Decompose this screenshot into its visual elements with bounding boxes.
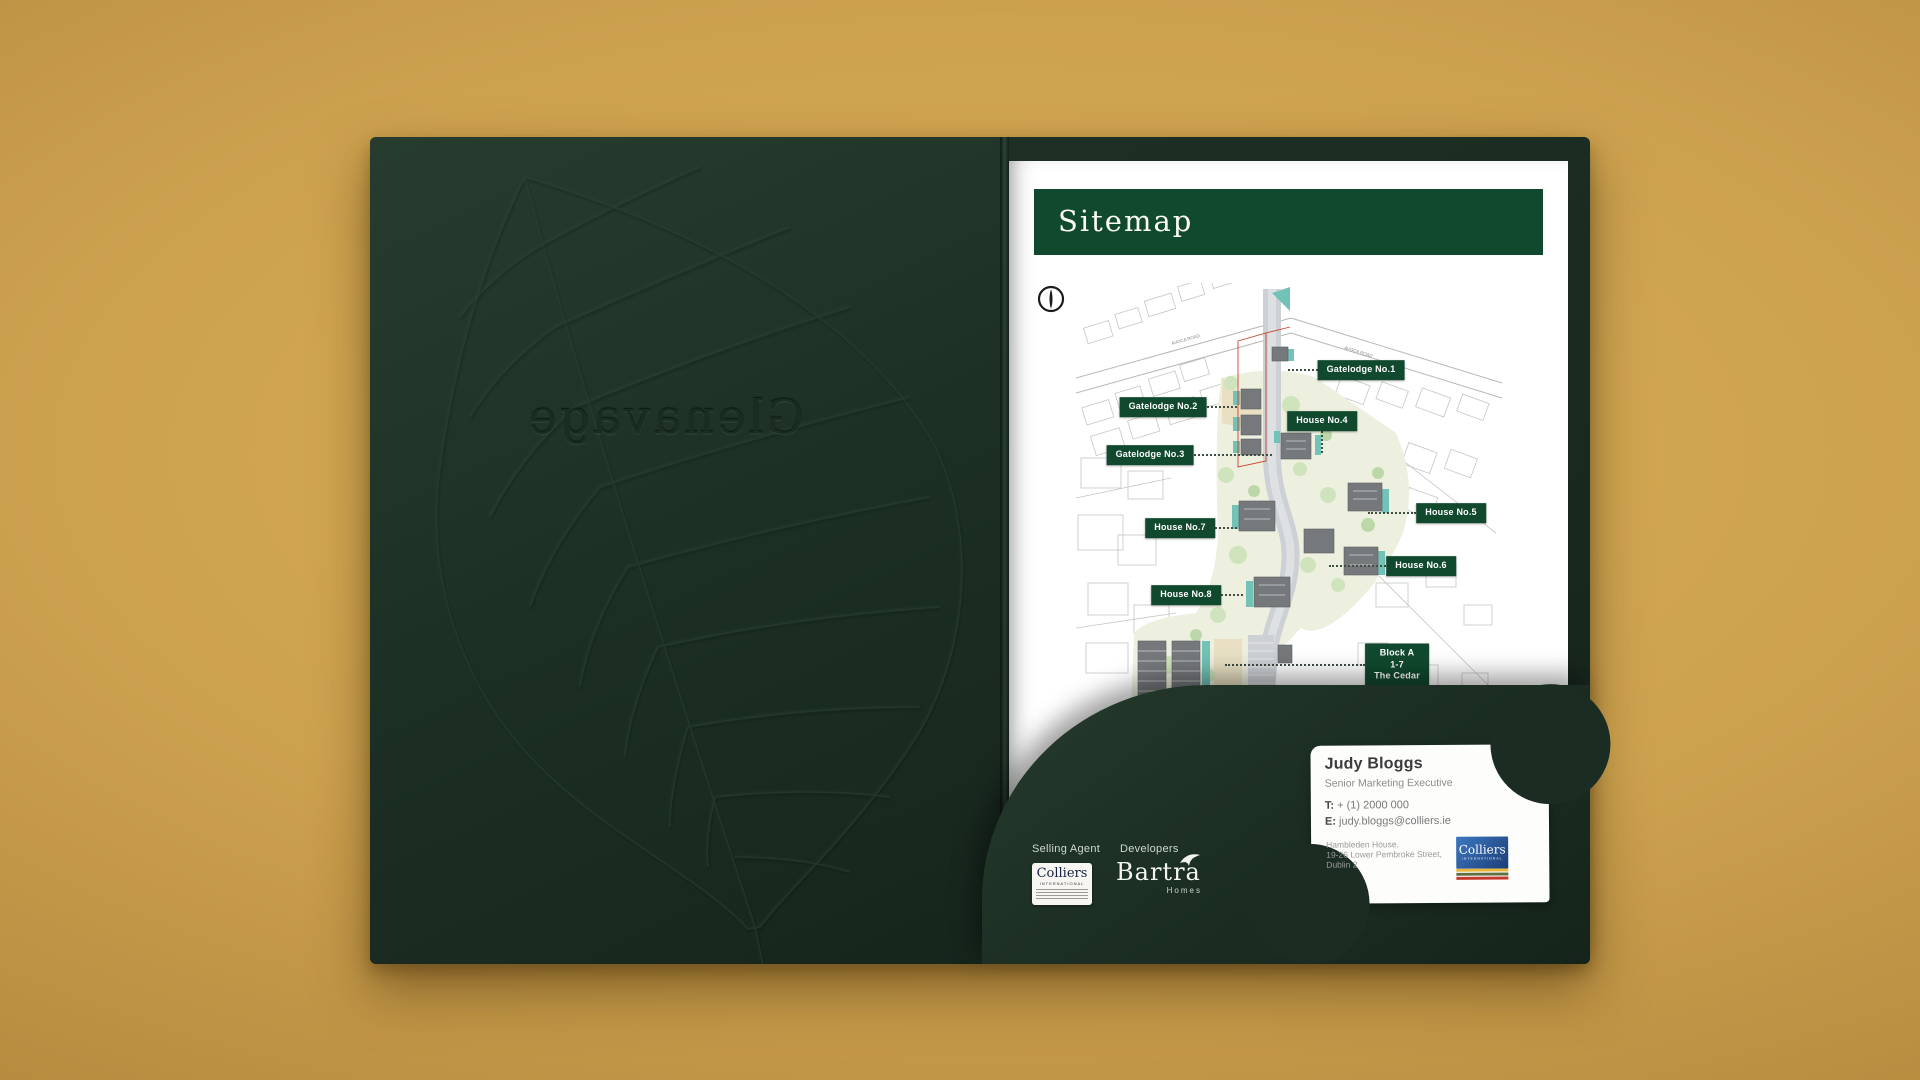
bartra-logo-subtitle: Homes: [1116, 886, 1202, 895]
card-address-line: Dublin 2: [1326, 859, 1442, 870]
page-title-banner: Sitemap: [1034, 189, 1543, 255]
leader-line: [1225, 664, 1365, 666]
map-label-badge: Gatelodge No.1: [1318, 360, 1405, 380]
colliers-logo-stripes: [1456, 868, 1508, 879]
colliers-international-logo: Colliers INTERNATIONAL: [1032, 863, 1092, 905]
colliers-logo-subtitle: INTERNATIONAL: [1032, 881, 1092, 886]
colliers-international-logo: Colliers INTERNATIONAL: [1456, 836, 1508, 879]
card-phone-label: T:: [1325, 800, 1334, 812]
colliers-logo-wordmark: Colliers: [1456, 836, 1508, 856]
business-card: Judy Bloggs Senior Marketing Executive T…: [1310, 744, 1549, 904]
pocket-diecut-notch: [1490, 684, 1611, 805]
bird-icon: [1178, 850, 1204, 868]
site-map: AVOCA ROAD AVOCA ROAD: [1076, 283, 1502, 708]
leader-line: [1288, 369, 1318, 371]
leader-line: [1194, 454, 1272, 456]
card-address: Hambleden House, 19-26 Lower Pembroke St…: [1326, 839, 1442, 870]
colliers-logo-stripes: [1036, 889, 1088, 899]
presentation-folder: Glenavage Sitemap: [370, 137, 1590, 964]
map-label-badge: Gatelodge No.3: [1107, 445, 1194, 465]
card-phone: T: + (1) 2000 000: [1325, 799, 1409, 812]
card-phone-number: + (1) 2000 000: [1334, 799, 1409, 812]
embossed-leaf-illustration: [370, 137, 1005, 964]
map-label-badge: Block A1-7The Cedar: [1365, 643, 1429, 686]
map-label-badge: House No.6: [1386, 556, 1456, 576]
site-plan-drawing: AVOCA ROAD AVOCA ROAD: [1076, 283, 1502, 708]
leader-line: [1221, 594, 1243, 596]
leader-line: [1207, 406, 1237, 408]
leader-line: [1215, 527, 1237, 529]
card-email-address: judy.bloggs@colliers.ie: [1336, 815, 1451, 828]
folder-front-cover: Glenavage: [370, 137, 1005, 964]
map-label-badge: House No.8: [1151, 585, 1221, 605]
embossed-brand-text: Glenavage: [526, 391, 804, 446]
page-title: Sitemap: [1034, 189, 1543, 253]
leader-line: [1329, 565, 1386, 567]
colliers-logo-subtitle: INTERNATIONAL: [1456, 856, 1508, 861]
selling-agent-heading: Selling Agent: [1032, 843, 1100, 855]
leader-line: [1321, 431, 1323, 453]
card-email-label: E:: [1325, 816, 1336, 828]
card-address-line: 19-26 Lower Pembroke Street,: [1326, 849, 1442, 860]
leader-line: [1368, 512, 1416, 514]
compass-north-icon: [1037, 285, 1065, 313]
bartra-homes-logo: Bartra Homes: [1116, 859, 1206, 907]
map-label-badge: House No.4: [1287, 411, 1357, 431]
developers-heading: Developers: [1120, 843, 1179, 855]
scene: Glenavage Sitemap: [0, 0, 1920, 1080]
map-label-badge: House No.5: [1416, 503, 1486, 523]
card-contact-name: Judy Bloggs: [1325, 755, 1423, 774]
map-label-badge: Gatelodge No.2: [1120, 397, 1207, 417]
colliers-logo-wordmark: Colliers: [1032, 866, 1092, 881]
card-contact-role: Senior Marketing Executive: [1325, 777, 1453, 790]
card-email: E: judy.bloggs@colliers.ie: [1325, 815, 1451, 828]
map-label-badge: House No.7: [1145, 518, 1215, 538]
